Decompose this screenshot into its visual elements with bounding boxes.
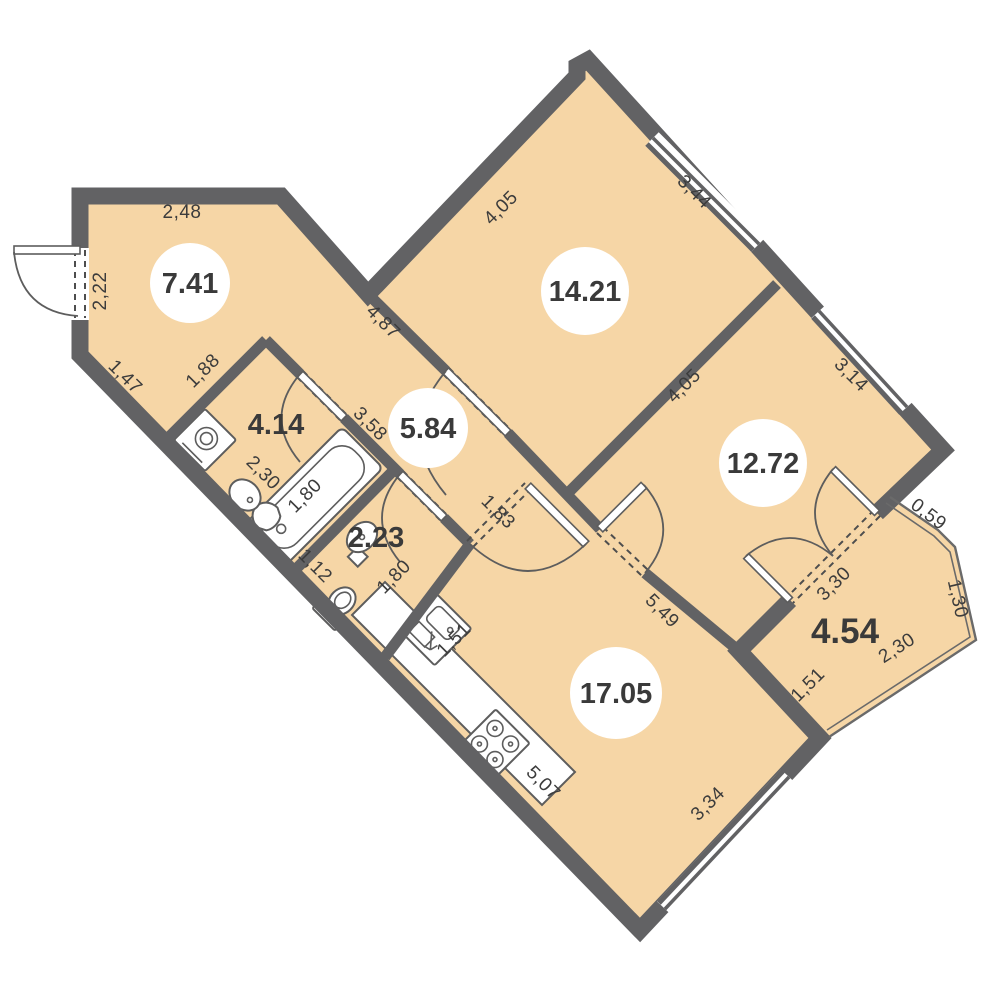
room-area-balcony: 4.54 [811, 612, 880, 651]
entry-door-icon [14, 246, 89, 320]
room-area-entry-hall: 7.41 [162, 268, 218, 300]
dim-label: 2,48 [163, 202, 202, 223]
room-area-bedroom-2: 12.72 [727, 448, 800, 480]
room-area-hallway: 5.84 [400, 413, 456, 445]
room-area-wc: 2.23 [348, 522, 404, 554]
room-area-bathroom: 4.14 [248, 409, 304, 441]
room-area-bedroom-1: 14.21 [549, 276, 622, 308]
floor-plan: 7.41 14.21 12.72 5.84 4.14 2.23 17.05 4.… [0, 0, 1000, 1000]
room-area-kitchen: 17.05 [580, 678, 653, 710]
floor-plan-page: 7.41 14.21 12.72 5.84 4.14 2.23 17.05 4.… [0, 0, 1000, 1000]
dim-label: 2,22 [90, 272, 111, 311]
